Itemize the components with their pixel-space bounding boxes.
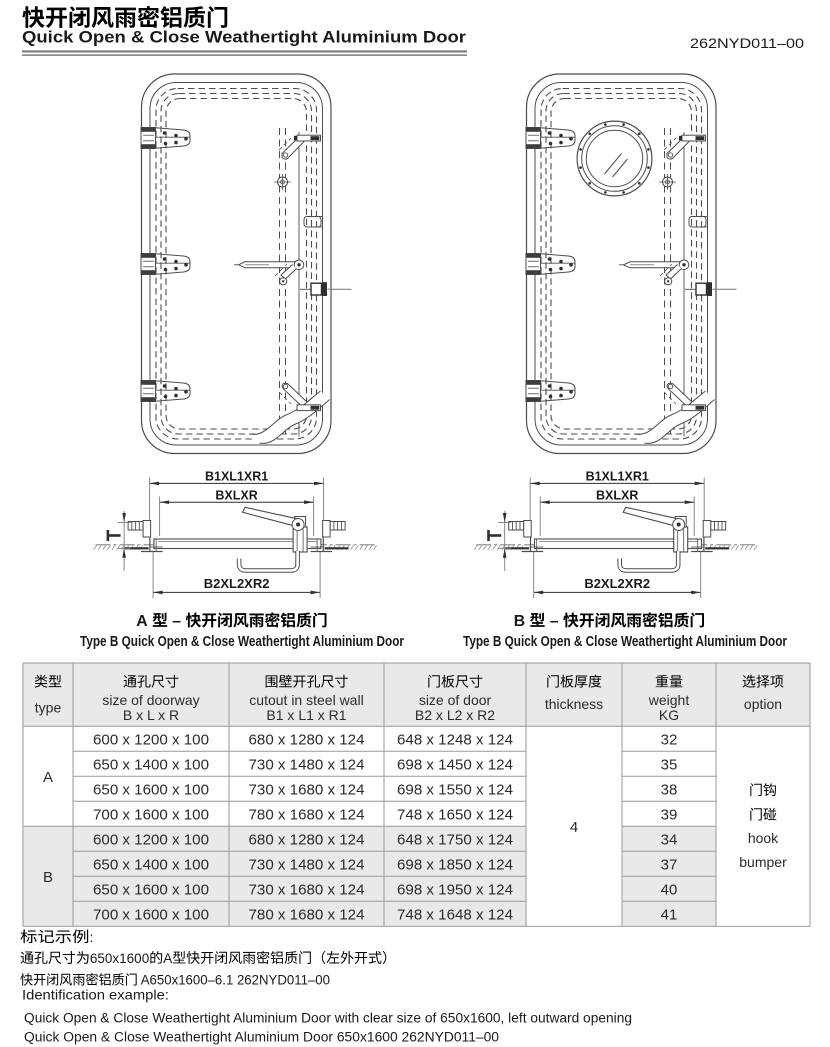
svg-text:748 x 1648 x 124: 748 x 1648 x 124 [397, 907, 513, 924]
svg-text:650 x 1600 x 100: 650 x 1600 x 100 [93, 782, 209, 799]
svg-text:698 x 1850 x 124: 698 x 1850 x 124 [397, 857, 513, 874]
svg-text:600 x 1200 x 100: 600 x 1200 x 100 [93, 832, 209, 849]
svg-text:Quick Open & Close Weathertigh: Quick Open & Close Weathertight Aluminiu… [24, 1030, 499, 1045]
svg-text:size of door: size of door [419, 692, 492, 708]
svg-text:700 x 1600 x 100: 700 x 1600 x 100 [93, 907, 209, 924]
svg-text:698 x 1950 x 124: 698 x 1950 x 124 [397, 882, 513, 899]
svg-text:B1XL1XR1: B1XL1XR1 [586, 470, 649, 484]
svg-text:weight: weight [648, 692, 690, 708]
svg-text:730 x 1680 x 124: 730 x 1680 x 124 [249, 882, 365, 899]
svg-text:650x1600: 650x1600 [90, 951, 149, 966]
svg-text:hook: hook [748, 830, 779, 846]
svg-text:650 x 1600 x 100: 650 x 1600 x 100 [93, 882, 209, 899]
svg-text:34: 34 [661, 832, 678, 849]
svg-text:648 x 1248 x 124: 648 x 1248 x 124 [397, 732, 513, 749]
svg-text:Type B Quick Open & Close Weat: Type B Quick Open & Close Weathertight A… [463, 634, 787, 650]
svg-text:37: 37 [661, 857, 678, 874]
svg-text:B2XL2XR2: B2XL2XR2 [204, 576, 270, 591]
svg-text:B x L x R: B x L x R [123, 707, 179, 723]
svg-text:BXLXR: BXLXR [215, 489, 257, 503]
svg-text:39: 39 [661, 807, 678, 824]
svg-text:B1 x L1 x R1: B1 x L1 x R1 [266, 707, 346, 723]
svg-text:A650x1600–6.1 262NYD011–00: A650x1600–6.1 262NYD011–00 [138, 973, 330, 988]
svg-text:262NYD011–00: 262NYD011–00 [690, 35, 804, 51]
svg-text:41: 41 [661, 907, 678, 924]
svg-text:B2 x L2 x R2: B2 x L2 x R2 [415, 707, 495, 723]
svg-text:700 x 1600 x 100: 700 x 1600 x 100 [93, 807, 209, 824]
svg-text:748 x 1650 x 124: 748 x 1650 x 124 [397, 807, 513, 824]
svg-text:B1XL1XR1: B1XL1XR1 [205, 470, 268, 484]
svg-text:698 x 1550 x 124: 698 x 1550 x 124 [397, 782, 513, 799]
svg-text:BXLXR: BXLXR [596, 489, 638, 503]
svg-text:–: – [545, 613, 563, 630]
svg-text:B: B [43, 869, 53, 886]
svg-text:size of doorway: size of doorway [102, 692, 199, 708]
svg-text:730 x 1480 x 124: 730 x 1480 x 124 [249, 757, 365, 774]
svg-text:KG: KG [659, 707, 679, 723]
svg-text:650 x 1400 x 100: 650 x 1400 x 100 [93, 757, 209, 774]
svg-text:A: A [43, 769, 53, 786]
svg-text:B: B [514, 613, 530, 630]
svg-text:35: 35 [661, 757, 678, 774]
svg-text:A: A [163, 951, 172, 966]
svg-text:38: 38 [661, 782, 678, 799]
svg-text:730 x 1480 x 124: 730 x 1480 x 124 [249, 857, 365, 874]
svg-text:648 x 1750 x 124: 648 x 1750 x 124 [397, 832, 513, 849]
svg-text:Type B Quick Open & Close Weat: Type B Quick Open & Close Weathertight A… [80, 634, 404, 650]
svg-text:600 x 1200 x 100: 600 x 1200 x 100 [93, 732, 209, 749]
svg-text:cutout in steel wall: cutout in steel wall [249, 692, 363, 708]
svg-text:680 x 1280 x 124: 680 x 1280 x 124 [249, 732, 365, 749]
svg-text:730 x 1680 x 124: 730 x 1680 x 124 [249, 782, 365, 799]
svg-text:650 x 1400 x 100: 650 x 1400 x 100 [93, 857, 209, 874]
svg-text:780 x 1680 x 124: 780 x 1680 x 124 [249, 807, 365, 824]
svg-text:Identification example:: Identification example: [22, 987, 169, 1003]
svg-text:32: 32 [661, 732, 678, 749]
svg-text:B2XL2XR2: B2XL2XR2 [584, 576, 650, 591]
svg-text::: : [90, 929, 94, 945]
svg-text:–: – [168, 613, 186, 630]
svg-text:option: option [744, 696, 782, 712]
svg-text:40: 40 [661, 882, 678, 899]
svg-text:Quick Open & Close Weathertigh: Quick Open & Close Weathertight Aluminiu… [22, 28, 466, 47]
svg-text:bumper: bumper [739, 854, 787, 870]
svg-text:A: A [136, 613, 151, 630]
svg-text:4: 4 [570, 819, 578, 836]
svg-text:type: type [35, 700, 62, 716]
svg-text:thickness: thickness [545, 696, 603, 712]
svg-text:Quick Open & Close Weathertigh: Quick Open & Close Weathertight Aluminiu… [24, 1011, 632, 1026]
svg-text:698 x 1450 x 124: 698 x 1450 x 124 [397, 757, 513, 774]
svg-text:780 x 1680 x 124: 780 x 1680 x 124 [249, 907, 365, 924]
svg-text:680 x 1280 x 124: 680 x 1280 x 124 [249, 832, 365, 849]
